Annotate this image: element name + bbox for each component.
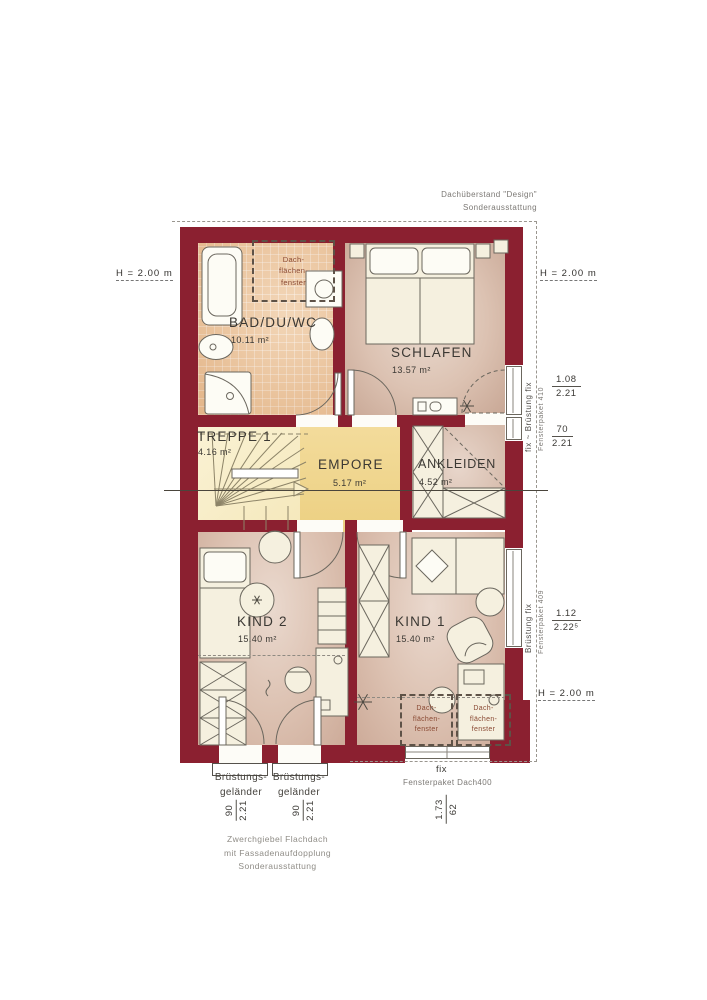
skylight-box: Dach- flächen- fenster — [400, 694, 453, 746]
door-leaf — [294, 532, 300, 578]
door-leaf — [348, 370, 354, 415]
railing-dim: 90 2.21 — [224, 800, 249, 821]
shelf-icon — [359, 545, 389, 657]
skylight-box: Dach- flächen- fenster — [252, 240, 335, 302]
room-label-kind1: KIND 1 — [395, 614, 446, 629]
armchair-icon — [443, 613, 497, 667]
roof-overhang-line — [536, 221, 537, 762]
railing-label: Brüstungs- geländer — [262, 770, 336, 800]
roof-overhang-line — [172, 221, 537, 222]
roof-overhang-line — [350, 761, 537, 762]
skylight-label: Dach- flächen- fenster — [413, 704, 440, 737]
skylight-label: Dach- flächen- fenster — [279, 254, 308, 289]
floor-plan: Dach- flächen- fenster Dach- flächen- fe… — [0, 0, 707, 1000]
room-label-kind2: KIND 2 — [237, 614, 288, 629]
nightstand-icon — [476, 244, 490, 258]
room-area-kind2: 15.40 m² — [238, 634, 277, 644]
window-label-bottom: fix — [436, 764, 447, 775]
window-dim: 1.08 2.21 — [552, 374, 581, 399]
railing-dim: 90 2.21 — [291, 800, 316, 821]
room-label-bad: BAD/DU/WC — [229, 315, 317, 330]
room-label-ankleiden: ANKLEIDEN — [418, 457, 496, 471]
room-label-treppe: TREPPE 1 — [197, 429, 272, 444]
height-label-right-top: H = 2.00 m — [540, 268, 597, 281]
nightstand-icon — [350, 244, 364, 258]
room-area-empore: 5.17 m² — [333, 478, 366, 488]
window-label-right-bottom: Brüstung fix — [524, 558, 533, 653]
room-label-empore: EMPORE — [318, 457, 384, 472]
niche — [494, 240, 508, 253]
window-dim: 1.12 2.22⁵ — [552, 608, 581, 633]
window-package-right-bottom: Fensterpaket 409 — [538, 562, 545, 654]
chair-icon — [285, 667, 311, 693]
room-area-bad: 10.11 m² — [231, 335, 269, 345]
window-label-right-top: fix ~ Brüstung fix — [524, 350, 533, 452]
window-dim: 1.73 62 — [434, 795, 459, 824]
window-package-bottom: Fensterpaket Dach400 — [400, 777, 495, 790]
dresser-icon — [413, 398, 457, 415]
room-label-schlafen: SCHLAFEN — [391, 345, 473, 360]
door-leaf — [400, 532, 406, 578]
chair-icon — [476, 588, 504, 616]
pillow-icon — [370, 248, 418, 274]
door-swing — [351, 370, 396, 415]
door-swing — [297, 532, 343, 578]
height-label-right-bottom: H = 2.00 m — [538, 688, 595, 701]
roof-slope-line — [198, 655, 345, 656]
pillow-icon — [204, 552, 246, 582]
section-line — [164, 490, 548, 491]
roof-overhang-note: Dachüberstand "Design" Sonderausstattung — [400, 189, 537, 215]
skylight-box: Dach- flächen- fenster — [456, 694, 511, 746]
window-package-right-top: Fensterpaket 410 — [538, 356, 545, 451]
room-area-kind1: 15.40 m² — [396, 634, 435, 644]
door-leaf — [314, 697, 321, 745]
door-swing — [296, 373, 338, 415]
room-area-ankleiden: 4.52 m² — [419, 477, 452, 487]
room-area-treppe: 4.16 m² — [198, 447, 231, 457]
wardrobe-icon — [413, 426, 505, 518]
door-swing — [276, 700, 314, 744]
door-leaf — [219, 697, 226, 745]
height-label-left: H = 2.00 m — [116, 268, 173, 281]
pillow-icon — [422, 248, 470, 274]
skylight-label: Dach- flächen- fenster — [470, 704, 497, 737]
stair-direction-arrow — [294, 482, 308, 496]
room-area-schlafen: 13.57 m² — [392, 365, 431, 375]
zwerchgiebel-note: Zwerchgiebel Flachdach mit Fassadenaufdo… — [190, 833, 365, 874]
passage-swing — [462, 370, 505, 413]
stair-handrail — [232, 469, 298, 478]
window-dim: 70 2.21 — [552, 424, 573, 449]
